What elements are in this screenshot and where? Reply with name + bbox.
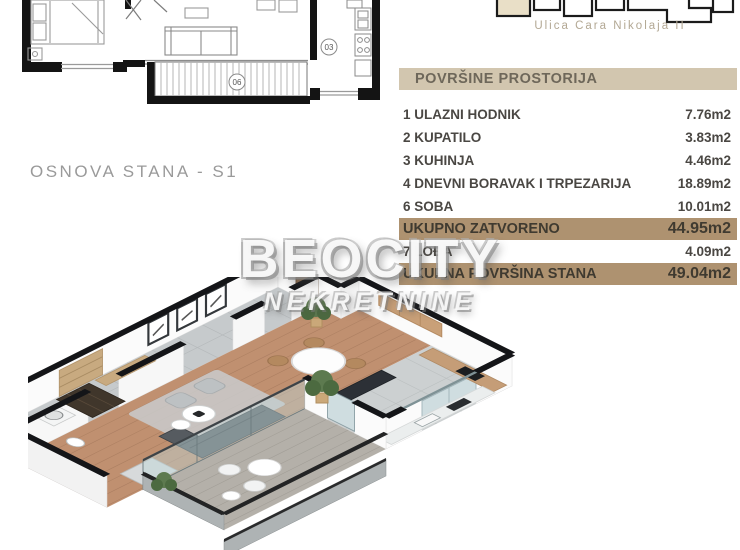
floor-plan-2d: 06 03 <box>14 0 380 112</box>
total-area: 44.95m2 <box>668 220 731 238</box>
floor-plan-3d <box>28 277 533 550</box>
window <box>61 65 113 69</box>
site-unit <box>564 0 592 16</box>
table-row: 6 SOBA 10.01m2 <box>399 195 737 218</box>
site-unit <box>534 0 560 10</box>
window <box>320 92 358 96</box>
wall <box>22 0 31 72</box>
kitchen-fixtures <box>347 0 371 76</box>
room-label: 2 KUPATILO <box>403 130 481 145</box>
door-swing <box>126 0 167 20</box>
table-row: 4 DNEVNI BORAVAK I TRPEZARIJA 18.89m2 <box>399 172 737 195</box>
wall <box>22 62 62 72</box>
listing-floorplan-page: 06 03 <box>0 0 740 550</box>
room-area: 4.46m2 <box>685 153 731 168</box>
wall <box>123 60 145 67</box>
kitchen-room-number: 03 <box>325 43 334 52</box>
wall <box>310 88 320 100</box>
table-row: 3 KUHINJA 4.46m2 <box>399 149 737 172</box>
bed <box>31 0 104 44</box>
site-unit <box>596 0 624 10</box>
wall <box>372 0 380 92</box>
room-label: 1 ULAZNI HODNIK <box>403 107 521 122</box>
table-row-total-closed: UKUPNO ZATVORENO 44.95m2 <box>399 218 737 240</box>
total-label: UKUPNO ZATVORENO <box>403 221 560 237</box>
site-unit-highlighted <box>497 0 530 16</box>
room-label: 3 KUHINJA <box>403 153 474 168</box>
total-area: 49.04m2 <box>668 265 731 283</box>
sofa <box>165 27 237 55</box>
room-area: 10.01m2 <box>678 199 731 214</box>
plan-caption: OSNOVA STANA - S1 <box>30 162 238 182</box>
room-area: 7.76m2 <box>685 107 731 122</box>
loggia-room-number: 06 <box>233 78 242 87</box>
furniture <box>257 0 275 10</box>
furniture <box>279 0 297 12</box>
coffee-table <box>185 8 208 18</box>
room-area: 3.83m2 <box>685 130 731 145</box>
wall <box>310 0 317 60</box>
street-label: Ulica Cara Nikolaja II <box>500 20 720 32</box>
room-area: 18.89m2 <box>678 176 731 191</box>
table-row: 1 ULAZNI HODNIK 7.76m2 <box>399 103 737 126</box>
table-row: 7 LOĐA 4.09m2 <box>399 240 737 263</box>
site-unit <box>628 0 711 22</box>
room-area: 4.09m2 <box>685 244 731 259</box>
room-label: 6 SOBA <box>403 199 453 214</box>
wall <box>152 96 310 104</box>
areas-table: POVRŠINE PROSTORIJA 1 ULAZNI HODNIK 7.76… <box>399 68 737 285</box>
areas-table-title: POVRŠINE PROSTORIJA <box>399 68 737 90</box>
table-row: 2 KUPATILO 3.83m2 <box>399 126 737 149</box>
room-label: 7 LOĐA <box>403 244 453 259</box>
room-label: 4 DNEVNI BORAVAK I TRPEZARIJA <box>403 176 631 191</box>
site-unit <box>713 0 733 12</box>
